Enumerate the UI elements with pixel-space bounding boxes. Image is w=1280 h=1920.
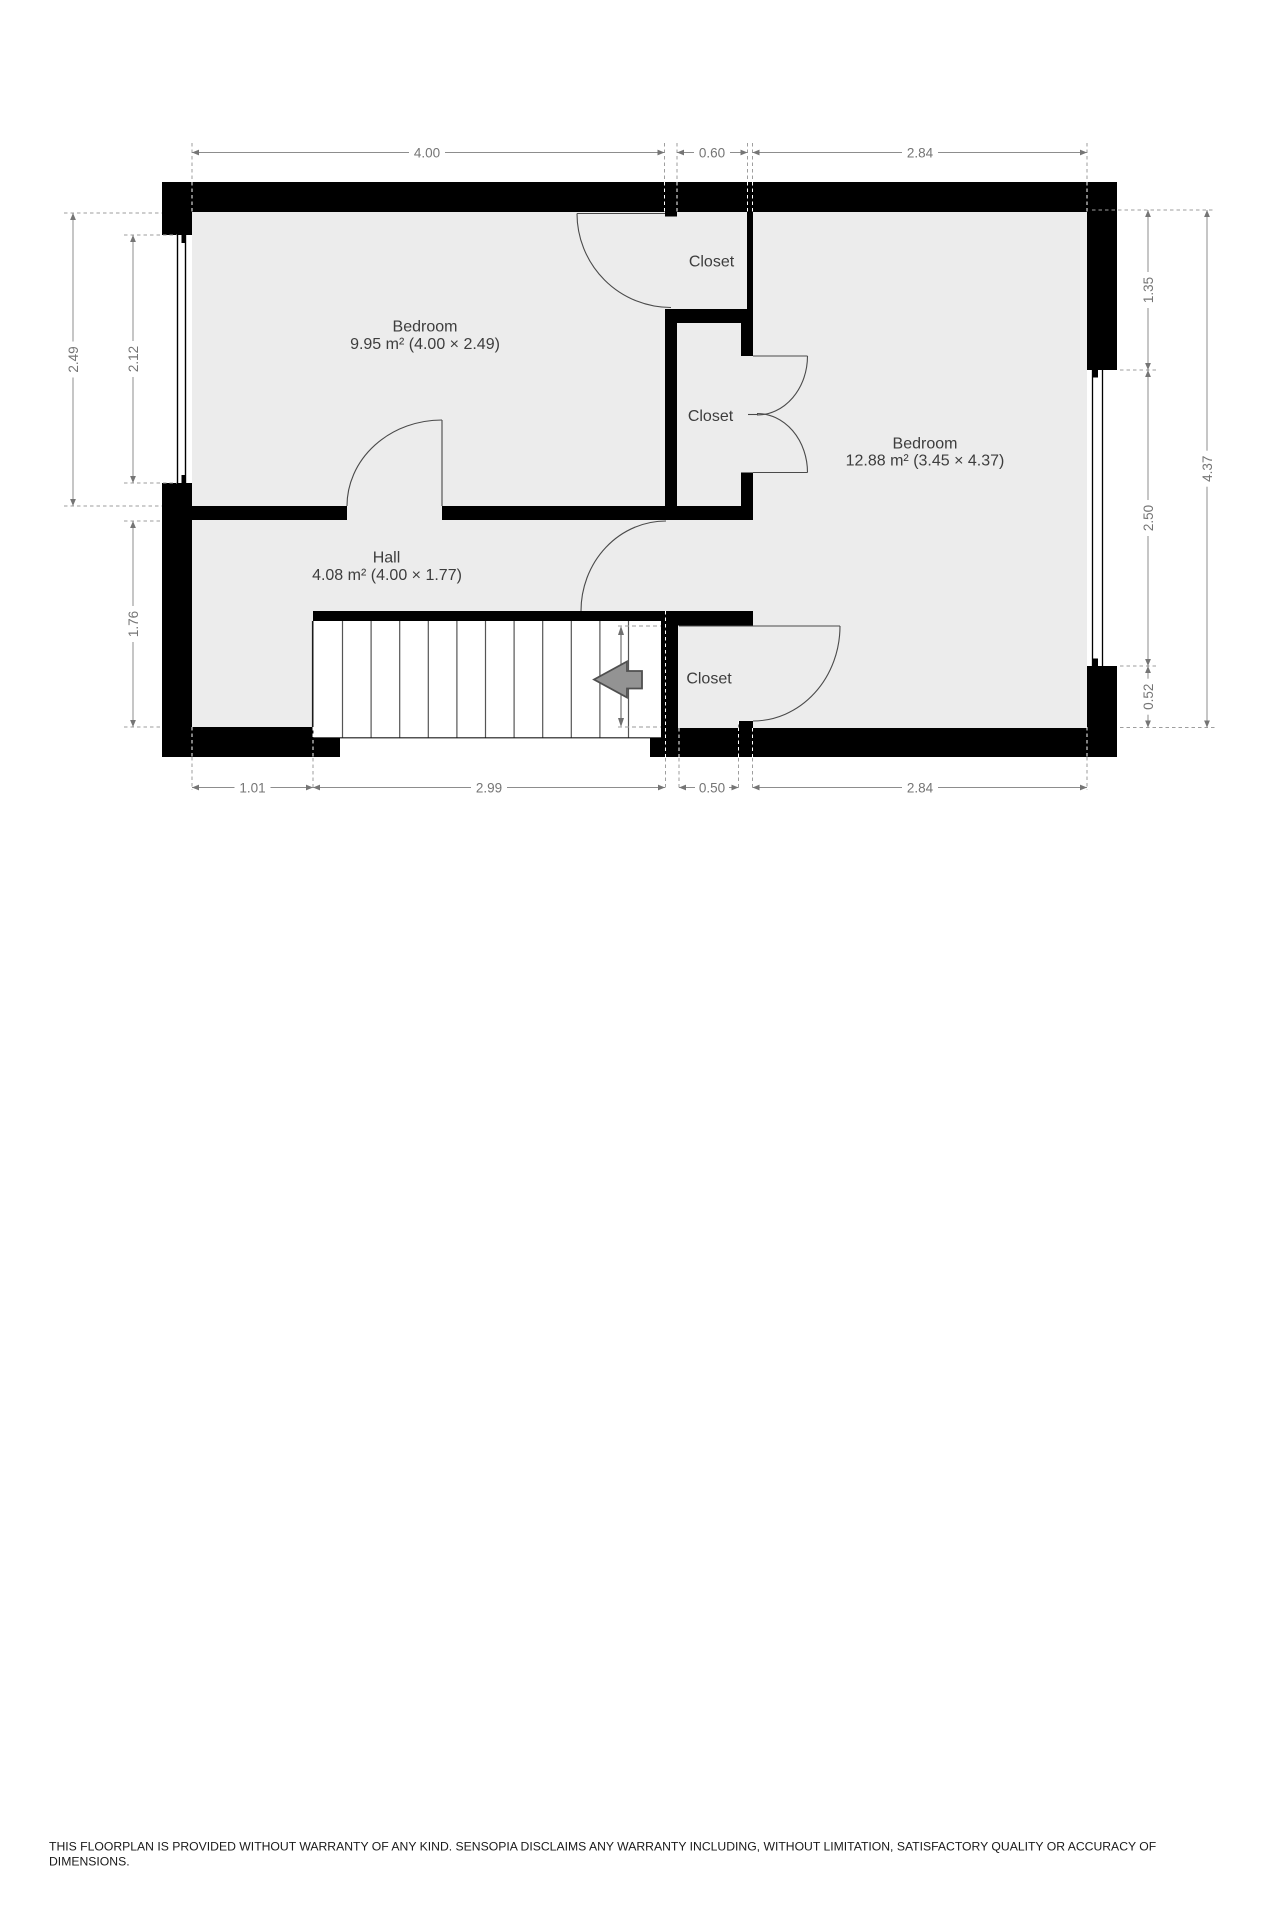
svg-text:2.12: 2.12 <box>126 346 141 372</box>
svg-text:Bedroom: Bedroom <box>393 319 458 336</box>
svg-text:9.95 m² (4.00 × 2.49): 9.95 m² (4.00 × 2.49) <box>350 336 500 353</box>
svg-text:Bedroom: Bedroom <box>893 435 958 452</box>
svg-text:2.49: 2.49 <box>66 346 81 372</box>
svg-text:0.52: 0.52 <box>1141 684 1156 710</box>
svg-text:THIS FLOORPLAN IS PROVIDED WIT: THIS FLOORPLAN IS PROVIDED WITHOUT WARRA… <box>49 1840 1156 1854</box>
svg-text:1.01: 1.01 <box>239 780 265 795</box>
svg-text:Closet: Closet <box>688 408 734 425</box>
svg-text:0.60: 0.60 <box>699 145 725 160</box>
svg-text:4.00: 4.00 <box>414 145 440 160</box>
svg-text:12.88 m² (3.45 × 4.37): 12.88 m² (3.45 × 4.37) <box>846 453 1005 470</box>
svg-text:4.37: 4.37 <box>1200 456 1215 482</box>
svg-text:1.76: 1.76 <box>126 611 141 637</box>
svg-text:Closet: Closet <box>686 670 732 687</box>
svg-text:1.35: 1.35 <box>1141 277 1156 303</box>
svg-text:2.84: 2.84 <box>907 145 934 160</box>
svg-text:0.50: 0.50 <box>699 780 725 795</box>
svg-text:2.84: 2.84 <box>907 780 934 795</box>
svg-text:2.99: 2.99 <box>476 780 502 795</box>
svg-text:Closet: Closet <box>689 254 735 271</box>
svg-text:2.50: 2.50 <box>1141 505 1156 531</box>
svg-text:Hall: Hall <box>373 550 401 567</box>
svg-text:4.08 m² (4.00 × 1.77): 4.08 m² (4.00 × 1.77) <box>312 567 462 584</box>
svg-text:DIMENSIONS.: DIMENSIONS. <box>49 1855 130 1869</box>
